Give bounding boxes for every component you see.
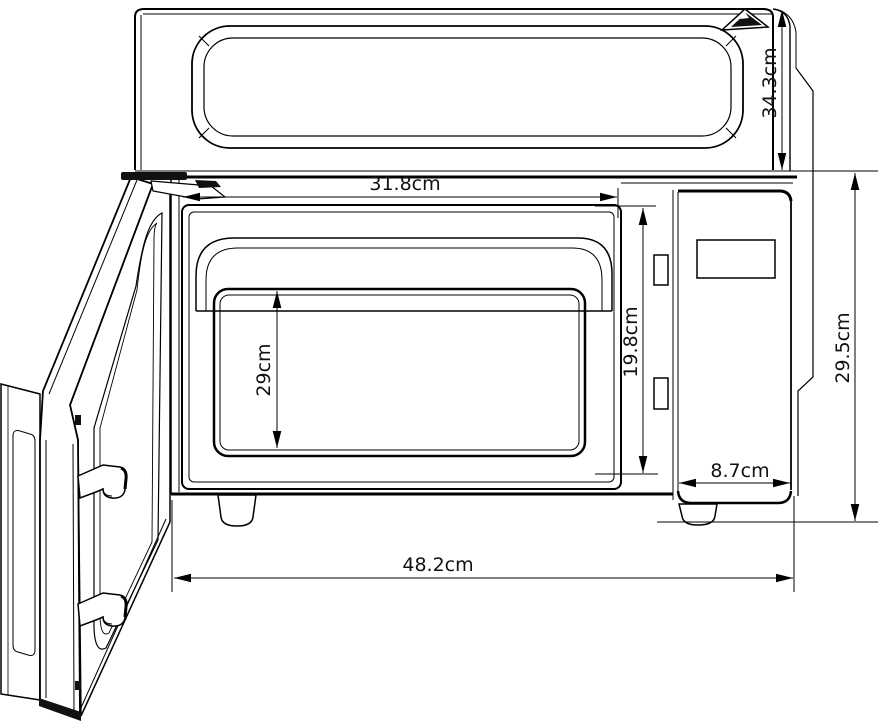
dim-label-cavity-height: 19.8cm [620,306,642,377]
diagram-canvas: 31.8cm 34.3cm 29cm 19.8cm 29.5cm 8.7cm 4… [0,0,887,728]
dim-label-front-height: 29.5cm [832,312,854,383]
dim-label-control-panel-width: 8.7cm [710,460,769,482]
foot-left [218,495,256,526]
dim-label-top-section-height: 34.3cm [759,47,781,118]
dim-label-cavity-width: 31.8cm [369,173,440,195]
microwave-dimension-diagram: 31.8cm 34.3cm 29cm 19.8cm 29.5cm 8.7cm 4… [0,0,887,728]
dim-label-inner-opening-height: 29cm [253,343,275,396]
dim-label-overall-width: 48.2cm [402,554,473,576]
